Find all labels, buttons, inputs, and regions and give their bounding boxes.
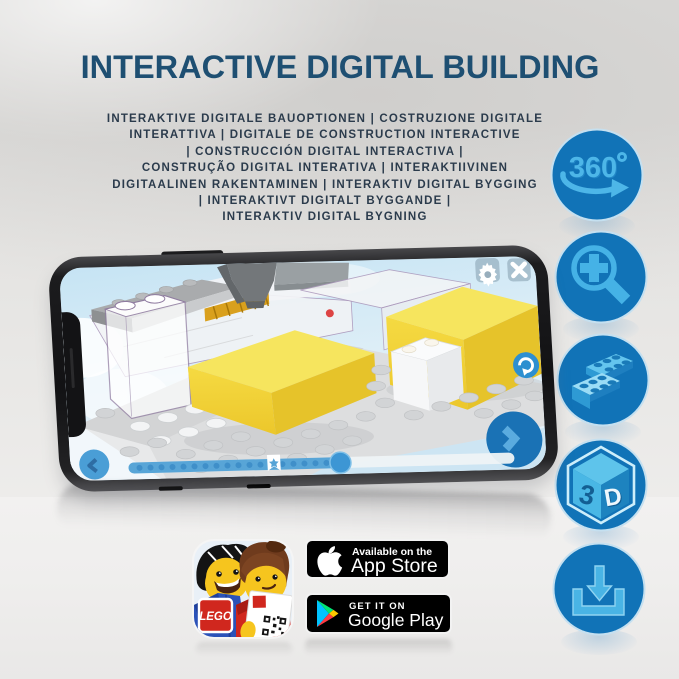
svg-text:Google Play: Google Play xyxy=(348,610,444,630)
svg-text:360: 360 xyxy=(569,152,617,184)
svg-text:App Store: App Store xyxy=(351,555,438,577)
svg-text:LEGO: LEGO xyxy=(199,611,232,623)
